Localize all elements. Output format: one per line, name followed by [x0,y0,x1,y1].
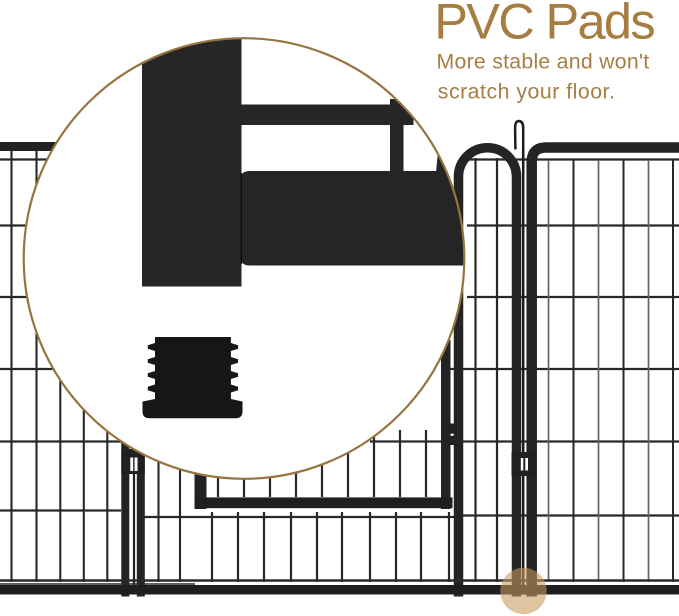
svg-text:More stable and won't: More stable and won't [437,50,650,74]
svg-text:PVC Pads: PVC Pads [434,0,654,50]
svg-text:scratch your floor.: scratch your floor. [438,80,616,104]
